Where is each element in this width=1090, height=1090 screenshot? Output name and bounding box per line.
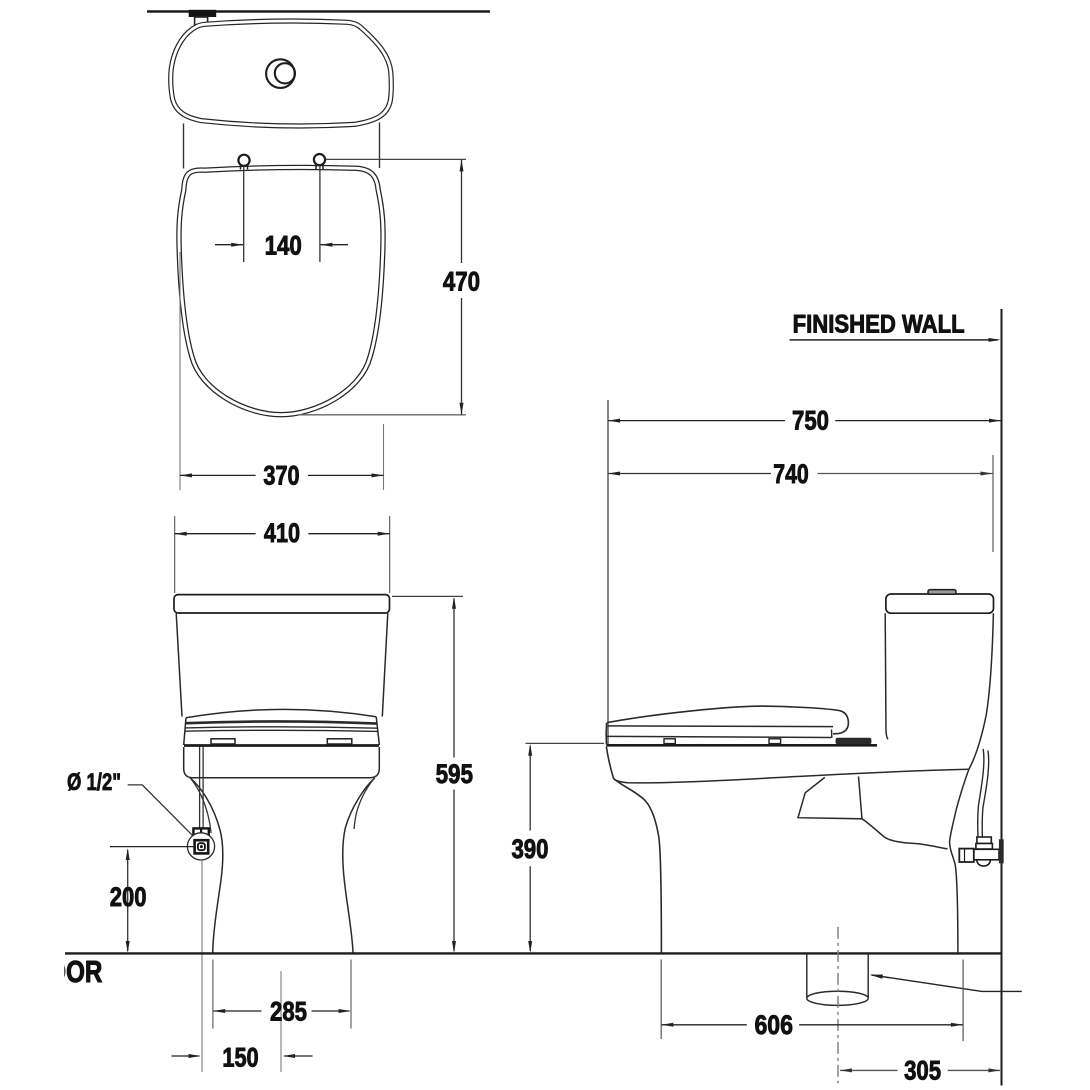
svg-text:390: 390 — [511, 834, 548, 864]
svg-text:200: 200 — [110, 882, 147, 912]
svg-text:370: 370 — [263, 461, 299, 491]
svg-text:FINISHED WALL: FINISHED WALL — [793, 310, 965, 338]
svg-text:750: 750 — [792, 405, 829, 435]
svg-text:740: 740 — [773, 459, 809, 489]
svg-text:305: 305 — [904, 1055, 941, 1085]
svg-text:140: 140 — [265, 230, 302, 260]
svg-text:595: 595 — [436, 759, 473, 789]
svg-text:470: 470 — [443, 267, 480, 297]
svg-text:285: 285 — [270, 996, 307, 1026]
svg-text:Ø 1/2": Ø 1/2" — [67, 769, 121, 796]
svg-text:150: 150 — [222, 1042, 258, 1072]
svg-text:606: 606 — [754, 1010, 793, 1040]
svg-text:410: 410 — [264, 518, 300, 548]
